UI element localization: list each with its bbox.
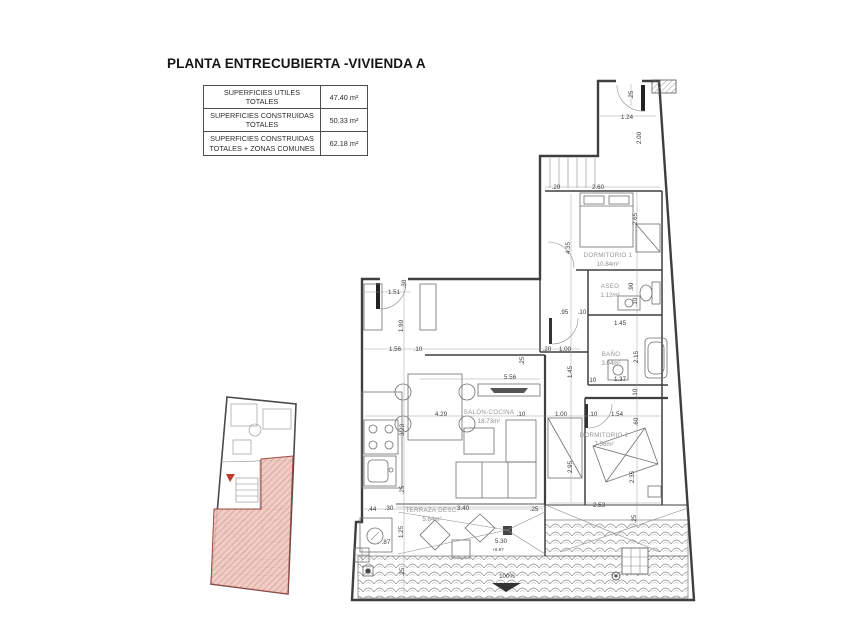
room-area-label: 1.12m² bbox=[600, 292, 619, 299]
dimension-label: 2.15 bbox=[633, 350, 640, 363]
room-area-label: 3.04m² bbox=[601, 360, 620, 367]
door-gap bbox=[616, 78, 642, 84]
dimension-label: .25 bbox=[530, 506, 539, 513]
dimension-label: 5.30 bbox=[495, 538, 508, 545]
dimension-label: 1.90 bbox=[398, 319, 405, 332]
summary-label: SUPERFICIES UTILES TOTALES bbox=[204, 86, 321, 109]
dimension-label: 1.00 bbox=[559, 346, 572, 353]
dimension-label: .95 bbox=[560, 309, 569, 316]
bed-dormitorio-2 bbox=[548, 418, 661, 497]
room-area-label: 7.56m² bbox=[594, 441, 613, 448]
dimension-label: .10 bbox=[588, 377, 597, 384]
room-name-label: SALÓN-COCINA bbox=[464, 409, 515, 416]
dimension-label: 4.29 bbox=[435, 411, 448, 418]
dimension-label: 2.60 bbox=[592, 184, 605, 191]
dimension-label: 2.53 bbox=[593, 502, 606, 509]
dimension-label: 1.45 bbox=[567, 365, 574, 378]
dimension-lines bbox=[362, 84, 660, 594]
shaft-hatch bbox=[652, 80, 676, 93]
room-name-label: DORMITORIO 2 bbox=[580, 432, 629, 439]
room-name-label: TERRAZA DESC. bbox=[405, 507, 458, 514]
dimension-label: .25 bbox=[631, 514, 638, 523]
room-name-label: DORMITORIO 1 bbox=[584, 252, 633, 259]
dimension-label: 3.40 bbox=[457, 505, 470, 512]
dimension-label: +9.67 bbox=[492, 547, 504, 552]
terrace-furniture bbox=[398, 512, 545, 558]
room-area-label: 18.73m² bbox=[478, 418, 501, 425]
interior-walls bbox=[425, 191, 688, 556]
room-area-label: 5.84m² bbox=[422, 516, 441, 523]
dimension-label: .10 bbox=[632, 297, 639, 306]
dimension-label: 100% bbox=[499, 573, 515, 580]
dimension-label: .20 bbox=[543, 346, 552, 353]
room-area-label: 10.84m² bbox=[597, 261, 620, 268]
summary-label: SUPERFICIES CONSTRUIDAS TOTALES + ZONAS … bbox=[204, 132, 321, 155]
dimension-label: 1.45 bbox=[614, 320, 627, 327]
dimension-label: 2.35 bbox=[629, 470, 636, 483]
dimension-label: .60 bbox=[633, 417, 640, 426]
dimension-label: 1.56 bbox=[389, 346, 402, 353]
dimension-label: .25 bbox=[399, 485, 406, 494]
page-title: PLANTA ENTRECUBIERTA -VIVIENDA A bbox=[167, 56, 426, 71]
dimension-label: 1.00 bbox=[555, 411, 568, 418]
sofa-tv bbox=[456, 384, 540, 498]
dimension-label: .90 bbox=[628, 282, 635, 291]
room-name-label: ASEO bbox=[601, 283, 619, 290]
dimension-label: 1.37 bbox=[614, 376, 627, 383]
dimension-label: .10 bbox=[414, 346, 423, 353]
dimension-label: .10 bbox=[517, 411, 526, 418]
dimension-label: 2.65 bbox=[632, 212, 639, 225]
dimension-label: 1.54 bbox=[611, 411, 624, 418]
key-plan bbox=[195, 388, 320, 613]
dimension-label: 2.95 bbox=[567, 460, 574, 473]
dimension-label: .20 bbox=[552, 184, 561, 191]
dimension-label: 1.24 bbox=[621, 114, 634, 121]
dimension-label: .25 bbox=[399, 567, 406, 576]
dimension-label: 3.23 bbox=[399, 423, 406, 436]
dimension-label: 2.00 bbox=[636, 131, 643, 144]
dimension-label: .30 bbox=[401, 279, 408, 288]
dimension-label: .25 bbox=[519, 356, 526, 365]
plan-labels: .251.242.00.202.602.654.35.90.10.95.101.… bbox=[368, 90, 643, 580]
dimension-label: .25 bbox=[628, 90, 635, 99]
summary-label: SUPERFICIES CONSTRUIDAS TOTALES bbox=[204, 109, 321, 132]
kitchen-counter bbox=[362, 284, 436, 488]
bed-dormitorio-1 bbox=[580, 193, 660, 252]
dimension-label: 1.25 bbox=[398, 525, 405, 538]
dimension-label: 5.56 bbox=[504, 374, 517, 381]
aseo-fixtures bbox=[618, 282, 660, 310]
dimension-label: .87 bbox=[382, 539, 391, 546]
main-floorplan: .251.242.00.202.602.654.35.90.10.95.101.… bbox=[340, 70, 708, 618]
dimension-label: .44 bbox=[368, 506, 377, 513]
dimension-label: .10 bbox=[578, 309, 587, 316]
plan-sheet: PLANTA ENTRECUBIERTA -VIVIENDA A SUPERFI… bbox=[0, 0, 865, 623]
dimension-label: .10 bbox=[632, 388, 639, 397]
dining-table bbox=[395, 374, 475, 440]
dimension-label: 1.51 bbox=[388, 289, 401, 296]
dimension-label: 4.35 bbox=[565, 241, 572, 254]
dimension-label: .30 bbox=[385, 505, 394, 512]
dimension-label: .10 bbox=[589, 411, 598, 418]
room-name-label: BAÑO bbox=[602, 351, 621, 358]
